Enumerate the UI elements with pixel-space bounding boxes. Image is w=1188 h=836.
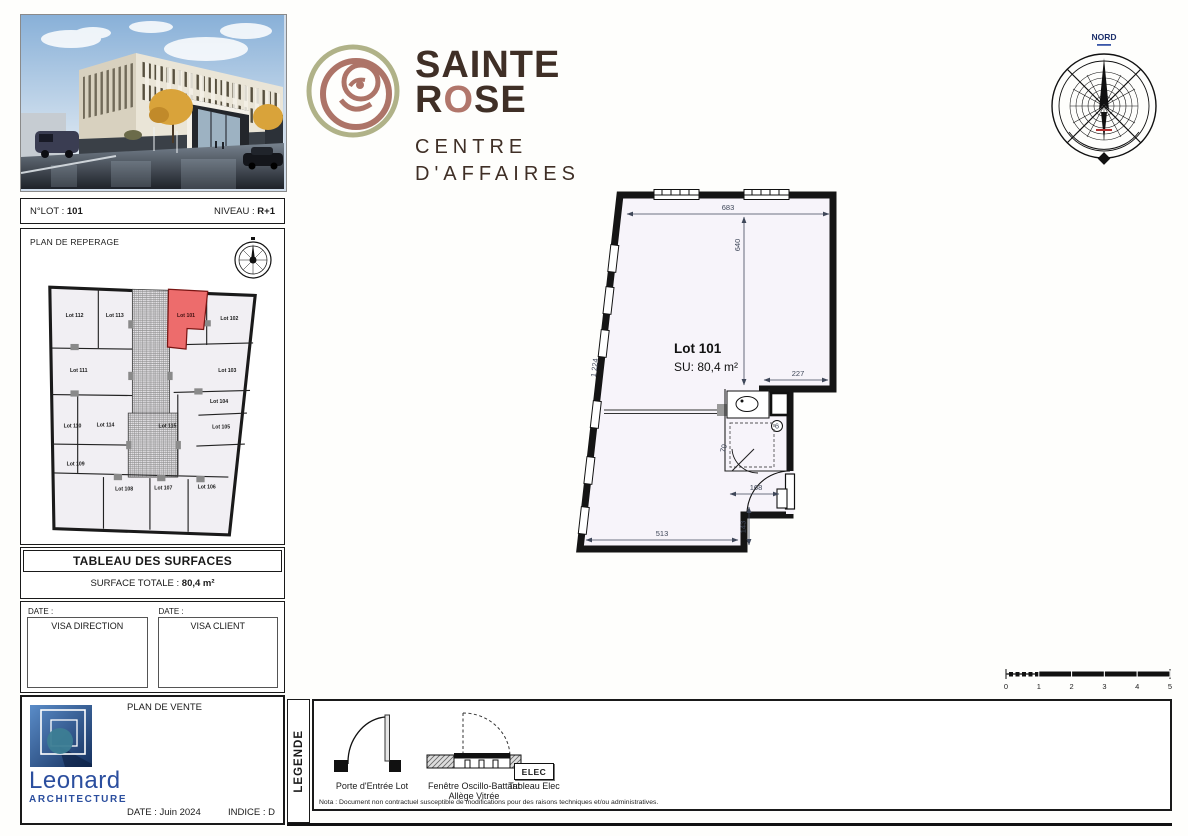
window-symbol bbox=[426, 709, 522, 777]
brand-subtitle: CENTRE D'AFFAIRES bbox=[415, 134, 580, 188]
brand-line2: ROSE bbox=[415, 83, 580, 118]
brand-line1: SAINTE bbox=[415, 48, 580, 83]
building-render-illustration bbox=[21, 15, 284, 189]
surface-table-panel: TABLEAU DES SURFACES SURFACE TOTALE : 80… bbox=[20, 547, 285, 599]
nota-text: Nota : Document non contractuel suscepti… bbox=[319, 799, 658, 806]
level: NIVEAU : R+1 bbox=[214, 206, 275, 217]
legend-tab: LEGENDE bbox=[287, 699, 310, 823]
note-6: 6 bbox=[775, 422, 779, 431]
mini-corridor bbox=[132, 289, 169, 415]
lot-number: N°LOT : 101 bbox=[30, 206, 83, 217]
mini-lot-label: Lot 110 bbox=[64, 424, 82, 430]
scale-tick: 4 bbox=[1135, 682, 1139, 691]
dim-640: 640 bbox=[733, 239, 742, 252]
mini-lot-label: Lot 102 bbox=[220, 316, 238, 322]
mini-compass-icon bbox=[230, 235, 276, 283]
main-floor-plan: 6 Lot 101 SU: 80,4 m² 683 640 1 224 227 … bbox=[574, 183, 840, 570]
wall-elec-panel bbox=[777, 489, 787, 508]
level-value: R+1 bbox=[257, 206, 275, 217]
scale-tick: 5 bbox=[1168, 682, 1172, 691]
elec-symbol: ELEC bbox=[514, 763, 554, 780]
document-title: PLAN DE VENTE bbox=[127, 702, 202, 713]
firm-subtitle: ARCHITECTURE bbox=[29, 795, 127, 805]
shaft bbox=[771, 393, 788, 415]
dim-227: 227 bbox=[792, 369, 805, 378]
scale-segments bbox=[1039, 671, 1170, 677]
mini-lot-label: Lot 101 bbox=[177, 313, 195, 319]
surface-table-title: TABLEAU DES SURFACES bbox=[23, 550, 282, 572]
dim-168: 168 bbox=[750, 483, 763, 492]
compass-blue-mark bbox=[1097, 44, 1111, 46]
document-date: DATE : Juin 2024 bbox=[127, 807, 201, 818]
north-compass: NORD bbox=[1043, 28, 1165, 171]
visa-panel: DATE : VISA DIRECTION DATE : VISA CLIENT bbox=[20, 601, 285, 693]
mini-lot-label: Lot 109 bbox=[67, 462, 85, 468]
surface-total: SURFACE TOTALE : 80,4 m² bbox=[21, 578, 284, 589]
location-plan-panel: PLAN DE REPERAGE bbox=[20, 228, 285, 545]
mini-lot-label: Lot 111 bbox=[70, 368, 88, 374]
dim-143: 143 bbox=[739, 521, 748, 534]
plan-lot-title: Lot 101 bbox=[674, 341, 722, 356]
rose-logo-icon bbox=[303, 38, 408, 148]
mini-lot-label: Lot 103 bbox=[218, 368, 236, 374]
scale-tick-labels: 012345 bbox=[1004, 682, 1172, 691]
mini-lot-label: Lot 113 bbox=[106, 313, 124, 319]
mini-lot-label: Lot 112 bbox=[66, 313, 84, 319]
compass-red-mark bbox=[1096, 129, 1112, 131]
legend-panel: Porte d'Entrée Lot Fenêtre Oscillo-Batta… bbox=[312, 699, 1172, 811]
lot-number-value: 101 bbox=[67, 206, 83, 217]
mini-lot-label: Lot 105 bbox=[212, 425, 230, 431]
visa-client-column: DATE : VISA CLIENT bbox=[158, 605, 279, 689]
location-plan-title: PLAN DE REPERAGE bbox=[30, 237, 119, 247]
date-label: DATE : bbox=[28, 607, 148, 616]
compass-base-diamond bbox=[1098, 152, 1111, 165]
lot-info-bar: N°LOT : 101 NIVEAU : R+1 bbox=[20, 198, 285, 224]
scale-tick: 0 bbox=[1004, 682, 1008, 691]
sainte-rose-brand: SAINTE ROSE CENTRE D'AFFAIRES bbox=[300, 28, 600, 193]
mini-lot-label: Lot 115 bbox=[159, 424, 177, 430]
door-symbol bbox=[332, 713, 410, 777]
plan-lot-surface: SU: 80,4 m² bbox=[674, 360, 738, 374]
dim-683: 683 bbox=[722, 203, 735, 212]
date-label: DATE : bbox=[159, 607, 279, 616]
visa-direction-column: DATE : VISA DIRECTION bbox=[27, 605, 148, 689]
mini-lot-label: Lot 107 bbox=[154, 485, 172, 491]
compass-north-label: NORD bbox=[1091, 32, 1116, 42]
firm-name-block: Leonard ARCHITECTURE bbox=[29, 769, 127, 805]
bottom-frame-rule bbox=[287, 823, 1172, 826]
firm-name: Leonard bbox=[29, 769, 127, 793]
rose-o-letter: O bbox=[443, 79, 474, 121]
legend-tab-label: LEGENDE bbox=[293, 730, 305, 793]
door-symbol-label: Porte d'Entrée Lot bbox=[320, 781, 424, 791]
compass-needle bbox=[1099, 58, 1109, 110]
visa-client-box: VISA CLIENT bbox=[158, 617, 279, 688]
visa-direction-box: VISA DIRECTION bbox=[27, 617, 148, 688]
leonard-architecture-logo bbox=[29, 704, 93, 768]
mini-lot-label: Lot 104 bbox=[210, 399, 228, 405]
mini-lot-label: Lot 114 bbox=[97, 423, 115, 429]
dim-513: 513 bbox=[656, 529, 669, 538]
title-block: Leonard ARCHITECTURE PLAN DE VENTE DATE … bbox=[20, 695, 285, 825]
partition-stub bbox=[717, 404, 728, 416]
building-render-photo bbox=[20, 14, 287, 192]
mini-lot-label: Lot 108 bbox=[115, 486, 133, 492]
scale-tick: 2 bbox=[1070, 682, 1074, 691]
mini-lot-label: Lot 106 bbox=[198, 484, 216, 490]
mini-floor-plan: Lot 112Lot 113Lot 101Lot 102Lot 111Lot 1… bbox=[35, 281, 270, 539]
scale-tick: 1 bbox=[1037, 682, 1041, 691]
surface-total-value: 80,4 m² bbox=[182, 578, 215, 589]
document-indice: INDICE : D bbox=[228, 807, 275, 818]
scale-tick: 3 bbox=[1102, 682, 1106, 691]
scale-bar: 012345 bbox=[1002, 666, 1174, 699]
lot-101-plan: 6 Lot 101 SU: 80,4 m² 683 640 1 224 227 … bbox=[574, 183, 840, 565]
elec-symbol-label: Tableau Elec bbox=[492, 781, 576, 791]
